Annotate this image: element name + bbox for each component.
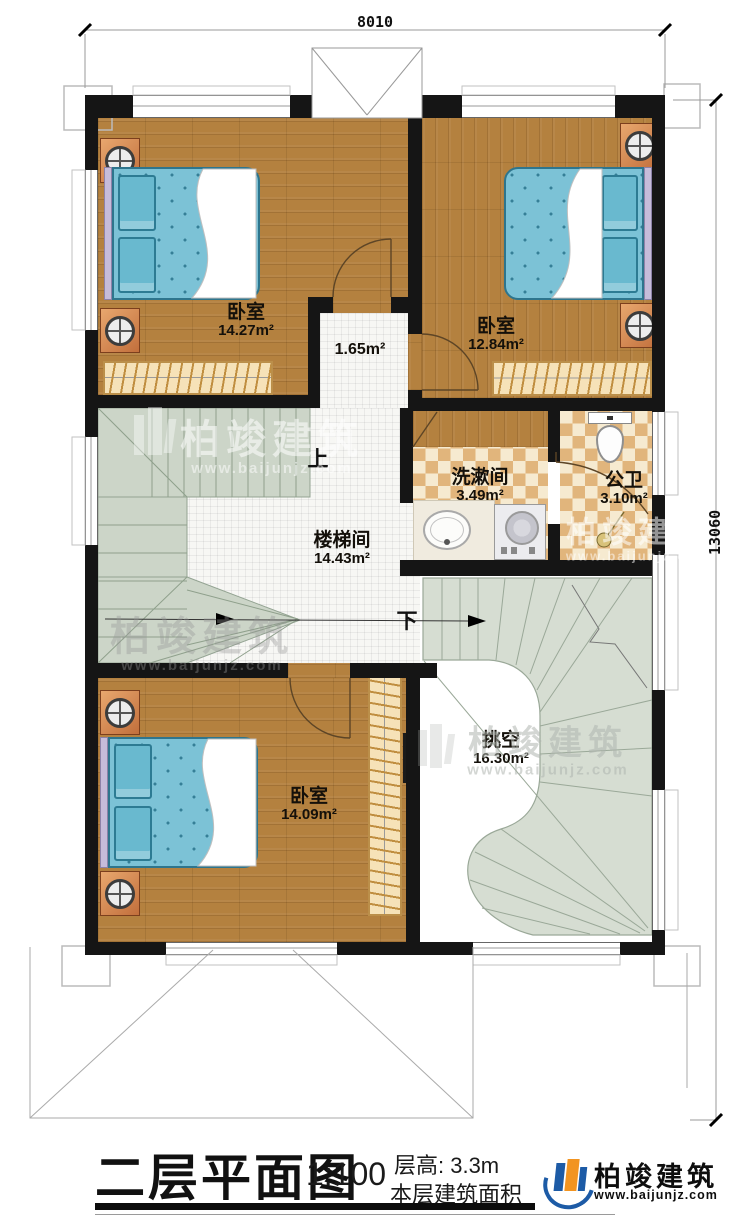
toilet-tank	[588, 412, 632, 424]
wall-washroom-west	[400, 408, 413, 503]
wall-bl-east	[406, 678, 420, 942]
nightstand	[100, 690, 140, 735]
window	[166, 942, 337, 955]
wall-washroom-toilet-b	[548, 524, 560, 564]
label-bedroom-bl: 卧室 14.09m²	[281, 786, 337, 824]
dimension-right: 13060	[706, 510, 724, 555]
wall-washroom-toilet-a	[548, 411, 560, 462]
title-underline-thin	[95, 1214, 615, 1215]
wall-corridor-west	[308, 297, 320, 408]
wall-stub	[320, 297, 333, 313]
wall-tr-west-upper	[408, 118, 422, 334]
floor-corridor	[320, 313, 408, 408]
watermark-logo-icon	[120, 405, 180, 471]
pillow	[602, 175, 638, 231]
pillow	[118, 237, 156, 293]
company-logo-icon	[543, 1157, 591, 1203]
label-bedroom-tl: 卧室 14.27m²	[218, 302, 274, 340]
company-logo-url: www.baijunjz.com	[594, 1188, 718, 1202]
wardrobe	[103, 361, 273, 395]
floor-plan-page: 卧室 14.27m² 卧室 12.84m² 卧室 14.09m² 1.65m² …	[0, 0, 750, 1217]
wall-tl-south	[85, 395, 308, 408]
label-corridor: 1.65m²	[335, 341, 386, 359]
bed-headboard	[644, 167, 652, 300]
label-washroom: 洗漱间 3.49m²	[451, 467, 508, 505]
watermark-logo-icon	[408, 722, 458, 782]
nightstand	[100, 871, 140, 916]
window	[652, 790, 665, 930]
window	[133, 95, 290, 118]
door-threshold-bl	[288, 663, 350, 678]
window	[85, 170, 98, 330]
door-threshold-tr	[408, 334, 422, 390]
window	[85, 437, 98, 545]
wall-stairwell-south-b	[350, 663, 437, 678]
label-bedroom-tr: 卧室 12.84m²	[468, 316, 524, 354]
pillow	[118, 175, 156, 231]
wall-stairwell-south-a	[85, 663, 288, 678]
pillow	[114, 744, 152, 799]
pillow	[114, 806, 152, 861]
wall-washroom-south	[400, 560, 652, 576]
window	[462, 95, 615, 118]
wall-tr-south	[413, 398, 652, 411]
label-stairs-down: 下	[397, 605, 418, 635]
label-stairs-up: 上	[308, 443, 329, 473]
bed-headboard	[100, 737, 108, 868]
title-underline	[95, 1203, 535, 1210]
washing-machine-icon	[494, 504, 546, 560]
window	[652, 555, 665, 690]
pillow	[602, 237, 638, 293]
bed-headboard	[104, 167, 112, 300]
label-void: 挑空 16.30m²	[473, 730, 529, 768]
nightstand	[100, 308, 140, 353]
window	[652, 412, 665, 495]
sink-icon	[423, 510, 471, 550]
label-stairwell: 楼梯间 14.43m²	[313, 530, 370, 568]
washroom-counter	[413, 411, 548, 447]
wardrobe	[492, 361, 652, 396]
wardrobe	[368, 676, 402, 916]
drawing-scale: 1:100	[306, 1156, 386, 1193]
dimension-top: 8010	[357, 13, 393, 31]
label-toilet: 公卫 3.10m²	[600, 470, 648, 508]
floor-height-note: 层高: 3.3m	[394, 1148, 499, 1180]
window	[473, 942, 620, 955]
